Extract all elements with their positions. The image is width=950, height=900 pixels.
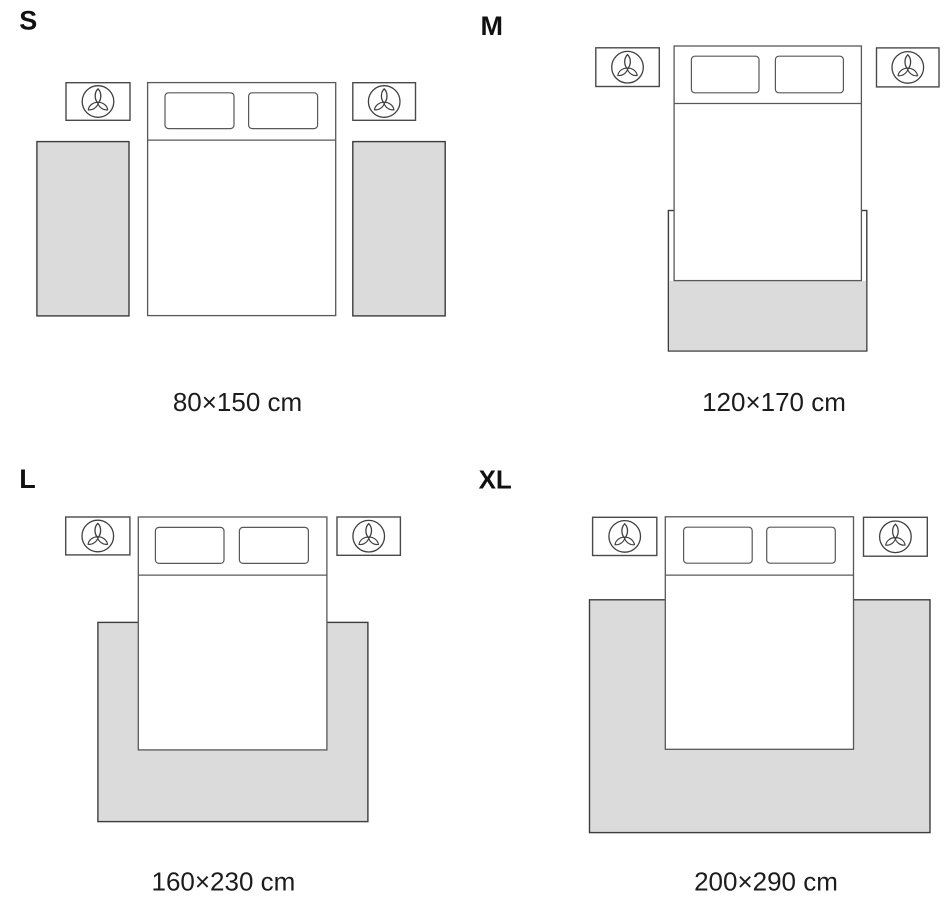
svg-text:M: M: [481, 11, 504, 41]
svg-text:S: S: [19, 6, 37, 36]
svg-text:XL: XL: [479, 465, 512, 495]
svg-text:160×230 cm: 160×230 cm: [151, 866, 295, 896]
svg-text:80×150 cm: 80×150 cm: [173, 387, 302, 417]
svg-text:L: L: [19, 464, 36, 494]
svg-text:200×290 cm: 200×290 cm: [694, 867, 838, 897]
svg-text:120×170 cm: 120×170 cm: [702, 387, 846, 417]
